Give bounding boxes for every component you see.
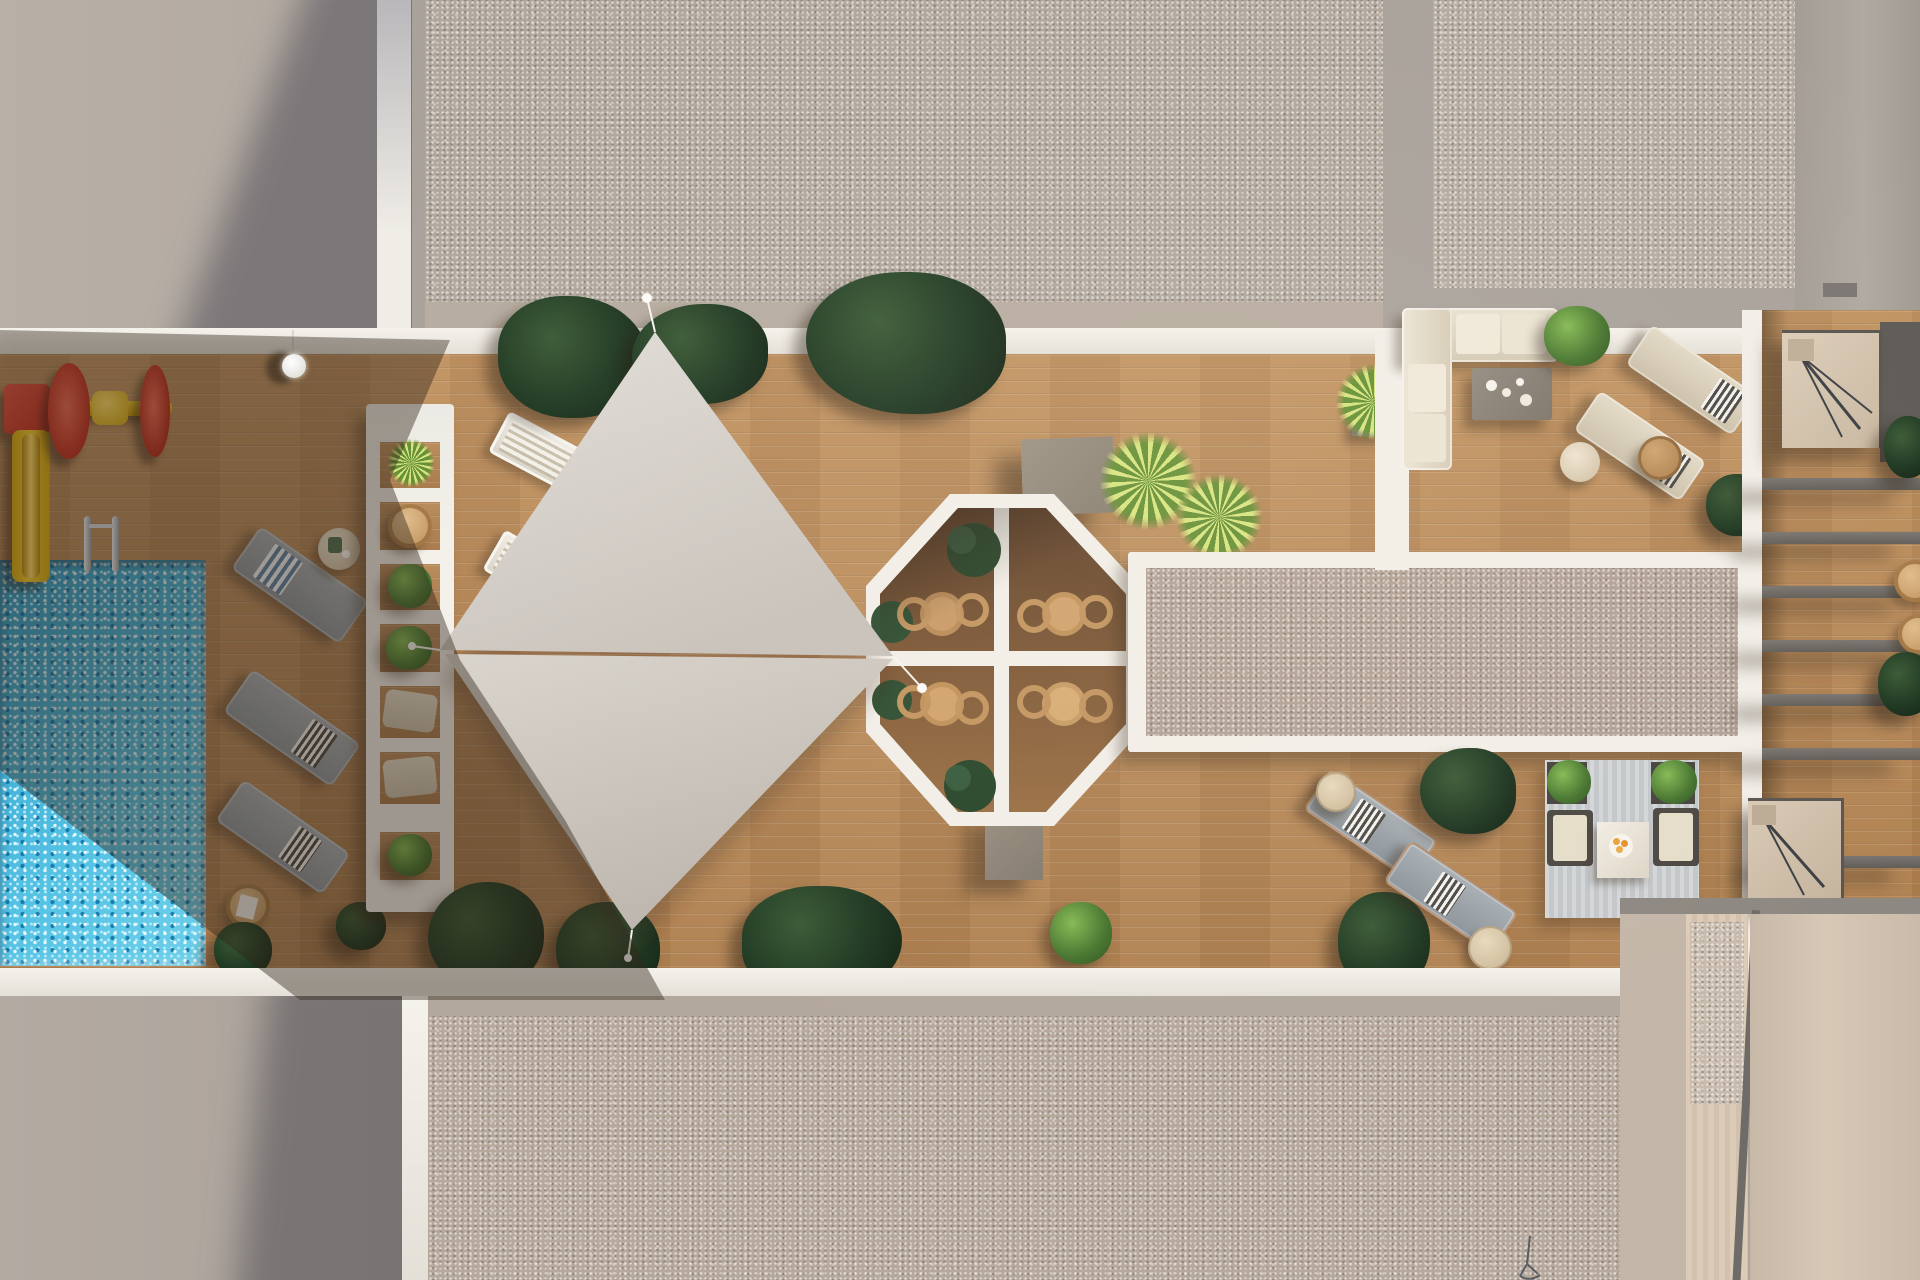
rug-shrub bbox=[1651, 760, 1697, 804]
zone-roof-bottom-left bbox=[0, 996, 402, 1280]
armchair bbox=[1653, 808, 1699, 866]
parapet-vertical-bottom bbox=[402, 996, 428, 1280]
coffee-table-white bbox=[1597, 822, 1649, 878]
stairwell bbox=[1748, 798, 1844, 902]
zone-pool bbox=[0, 560, 206, 966]
spinner-drum bbox=[92, 391, 128, 425]
pool-ladder bbox=[84, 516, 130, 572]
plate bbox=[1520, 394, 1532, 406]
zone-roof-top-right bbox=[1795, 0, 1920, 312]
stair-rails bbox=[1782, 333, 1882, 451]
pouf bbox=[1316, 772, 1356, 812]
louver-slat bbox=[1762, 748, 1920, 760]
side-table-wood bbox=[1638, 436, 1682, 480]
stairwell bbox=[1782, 330, 1882, 448]
gravel-bottom-margin bbox=[428, 996, 1620, 1016]
side-table-white bbox=[1560, 442, 1600, 482]
roof-vent-tab bbox=[1823, 283, 1857, 297]
slide-chute bbox=[22, 434, 40, 578]
parapet-vertical-top bbox=[377, 0, 411, 332]
coffee-table-dark bbox=[1472, 368, 1552, 420]
armchair-cushion bbox=[1659, 813, 1693, 861]
louver-slat bbox=[1762, 478, 1920, 490]
magazine bbox=[236, 894, 259, 920]
side-table-tray bbox=[318, 528, 360, 570]
zone-skylight-gravel bbox=[1146, 568, 1738, 736]
roof-bottom-shadow bbox=[231, 996, 402, 1280]
zone-shade-sails bbox=[400, 290, 960, 990]
pendant-light-disc bbox=[282, 354, 306, 378]
plant-bright bbox=[1050, 902, 1112, 964]
playground-spinner bbox=[40, 355, 180, 465]
tray-item bbox=[342, 550, 350, 558]
zone-gravel-roof-top-right bbox=[1433, 0, 1795, 288]
citrus bbox=[1616, 846, 1623, 853]
louver-slat bbox=[1762, 532, 1920, 544]
zone-courtyard-band1 bbox=[1620, 914, 1686, 1280]
lounger-towel bbox=[1423, 871, 1466, 917]
plant-dark bbox=[1420, 748, 1516, 834]
citrus bbox=[1613, 838, 1620, 845]
sofa-cushion bbox=[1502, 314, 1546, 354]
plant-bright bbox=[1544, 306, 1610, 366]
sofa-cushion bbox=[1456, 314, 1500, 354]
plate bbox=[1502, 388, 1511, 397]
lounger-towel bbox=[278, 825, 323, 872]
louver-slat bbox=[1762, 640, 1920, 652]
courtyard-gravel-strip bbox=[1690, 922, 1744, 1104]
stair-rails bbox=[1748, 801, 1844, 905]
armchair-cushion bbox=[1553, 815, 1587, 861]
lounger-towel bbox=[290, 718, 338, 768]
citrus bbox=[1621, 840, 1628, 847]
plate bbox=[1486, 380, 1497, 391]
yucca-palm bbox=[1176, 474, 1262, 560]
drain-sketch bbox=[1514, 1234, 1550, 1280]
tray-item bbox=[328, 537, 342, 553]
rooftop-render-scene: Top-down 3D architectural rendering of a… bbox=[0, 0, 1920, 1280]
roof-top-left-shadow bbox=[164, 0, 412, 330]
parapet-deck-bottom bbox=[0, 968, 1758, 996]
pool-ladder-step bbox=[89, 524, 115, 528]
sofa-cushion bbox=[1408, 414, 1446, 462]
zone-courtyard-band3 bbox=[1750, 914, 1920, 1280]
lounger-towel bbox=[1700, 377, 1745, 424]
zone-roof-top-left bbox=[0, 0, 412, 330]
zone-gravel-roof-bottom bbox=[428, 1016, 1620, 1280]
zone-gravel-roof-top bbox=[425, 0, 1383, 302]
sofa-cushion bbox=[1408, 364, 1446, 412]
pouf bbox=[1468, 926, 1512, 970]
terrace-bottom-edge bbox=[1620, 898, 1920, 914]
rug-shrub bbox=[1547, 760, 1591, 804]
armchair bbox=[1547, 810, 1593, 866]
spinner-wheel-left bbox=[48, 363, 90, 459]
plate bbox=[1516, 378, 1524, 386]
zone-rug-lounge bbox=[1545, 760, 1699, 918]
lounger-towel bbox=[252, 543, 303, 595]
plant-dark bbox=[1884, 416, 1920, 478]
spinner-wheel-right bbox=[140, 365, 170, 457]
